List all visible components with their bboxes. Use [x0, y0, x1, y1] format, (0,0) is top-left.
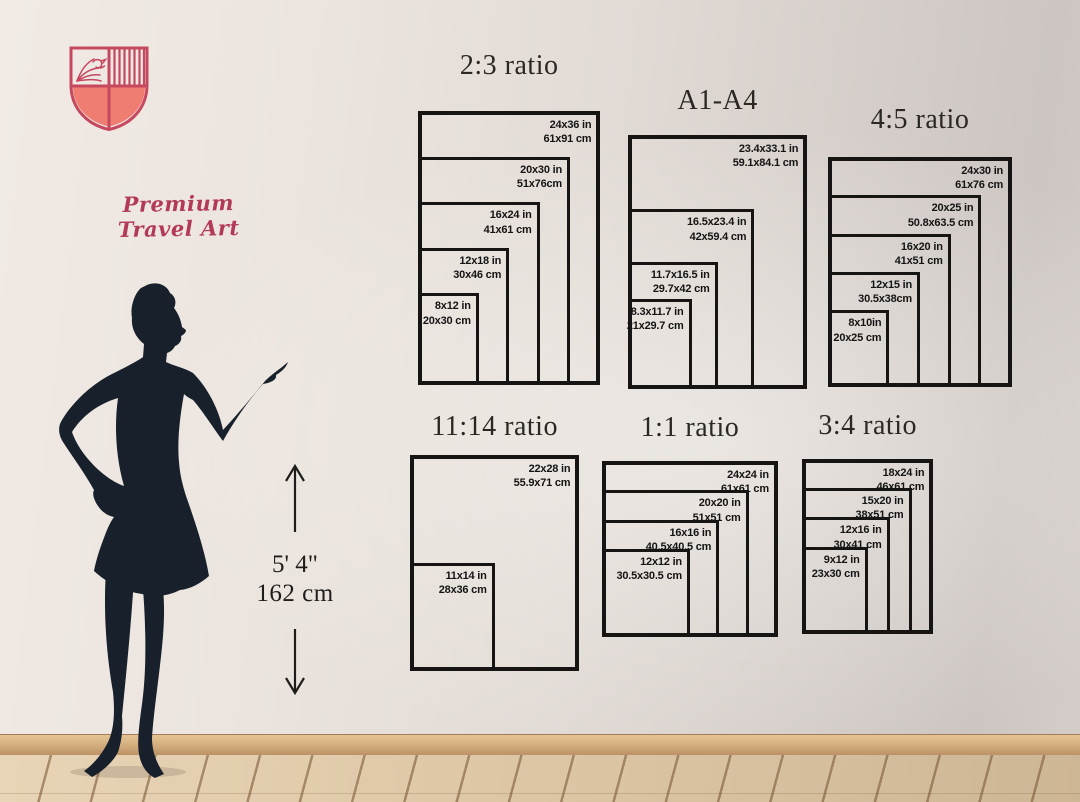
nested-frames: 22x28 in55.9x71 cm11x14 in28x36 cm [410, 455, 579, 671]
size-guide-scene: Premium Travel Art 2:3 ratio24x36 in61x9… [0, 0, 1080, 802]
size-label: 9x12 in23x30 cm [812, 553, 860, 582]
size-label-inches: 8x12 in [423, 299, 471, 313]
size-label-cm: 61x76 cm [955, 178, 1003, 192]
size-label: 20x30 in51x76cm [517, 163, 562, 192]
size-label-inches: 16.5x23.4 in [687, 215, 746, 229]
size-label-cm: 30.5x30.5 cm [616, 569, 682, 583]
size-label-inches: 23.4x33.1 in [733, 142, 799, 156]
size-chart-ratio-4-5: 4:5 ratio24x30 in61x76 cm20x25 in50.8x63… [828, 103, 1012, 387]
size-label: 16x24 in41x61 cm [484, 208, 532, 237]
chart-title: 1:1 ratio [641, 411, 740, 445]
size-label-inches: 20x30 in [517, 163, 562, 177]
size-label-inches: 8.3x11.7 in [627, 305, 684, 319]
size-label: 11.7x16.5 in29.7x42 cm [651, 268, 710, 297]
chart-title: 11:14 ratio [431, 410, 558, 444]
size-chart-ratio-1-1: 1:1 ratio24x24 in61x61 cm20x20 in51x51 c… [602, 411, 778, 637]
size-label-inches: 18x24 in [876, 466, 924, 480]
size-label-inches: 15x20 in [856, 494, 904, 508]
size-label-inches: 9x12 in [812, 553, 860, 567]
brand-name: Premium Travel Art [86, 189, 272, 243]
size-label-inches: 24x24 in [721, 468, 769, 482]
size-chart-ratio-3-4: 3:4 ratio18x24 in46x61 cm15x20 in38x51 c… [802, 409, 933, 634]
size-label-cm: 41x61 cm [484, 223, 532, 237]
size-frame: 9x12 in23x30 cm [802, 547, 868, 635]
chart-title: 3:4 ratio [818, 409, 917, 443]
size-label-inches: 16x20 in [895, 240, 943, 254]
size-label-inches: 11x14 in [439, 569, 487, 583]
size-label-cm: 51x76cm [517, 177, 562, 191]
bird-palm-quadrant [77, 59, 106, 81]
size-label-cm: 55.9x71 cm [514, 476, 571, 490]
size-label: 8x12 in20x30 cm [423, 299, 471, 328]
size-frame: 11x14 in28x36 cm [410, 563, 495, 671]
size-frame: 8x10in20x25 cm [828, 310, 889, 387]
size-label: 22x28 in55.9x71 cm [514, 462, 571, 491]
size-label-cm: 50.8x63.5 cm [908, 216, 974, 230]
size-label-inches: 12x18 in [453, 254, 501, 268]
chart-title: A1-A4 [677, 84, 757, 118]
size-label-inches: 22x28 in [514, 462, 571, 476]
size-label: 20x25 in50.8x63.5 cm [908, 201, 974, 230]
size-label: 23.4x33.1 in59.1x84.1 cm [733, 142, 799, 171]
size-label: 24x36 in61x91 cm [543, 118, 591, 147]
brand-logo: Premium Travel Art [66, 45, 152, 133]
size-label-cm: 41x51 cm [895, 254, 943, 268]
size-label-inches: 24x36 in [543, 118, 591, 132]
size-chart-ratio-11-14: 11:14 ratio22x28 in55.9x71 cm11x14 in28x… [410, 410, 579, 671]
size-label: 12x12 in30.5x30.5 cm [616, 555, 682, 584]
size-label-cm: 28x36 cm [439, 583, 487, 597]
chart-title: 4:5 ratio [871, 103, 970, 137]
size-label-cm: 21x29.7 cm [627, 319, 684, 333]
size-frame: 8.3x11.7 in21x29.7 cm [628, 299, 692, 389]
size-label-inches: 8x10in [833, 316, 881, 330]
nested-frames: 18x24 in46x61 cm15x20 in38x51 cm12x16 in… [802, 459, 933, 634]
size-label-cm: 59.1x84.1 cm [733, 156, 799, 170]
size-label-inches: 11.7x16.5 in [651, 268, 710, 282]
size-label-cm: 61x91 cm [543, 132, 591, 146]
size-label-cm: 30.5x38cm [858, 292, 912, 306]
size-label-cm: 29.7x42 cm [651, 282, 710, 296]
woman-silhouette [50, 280, 290, 780]
size-label: 8x10in20x25 cm [833, 316, 881, 345]
size-label: 12x18 in30x46 cm [453, 254, 501, 283]
size-label-inches: 12x15 in [858, 278, 912, 292]
size-label: 16.5x23.4 in42x59.4 cm [687, 215, 746, 244]
size-label-cm: 30x46 cm [453, 268, 501, 282]
nested-frames: 24x30 in61x76 cm20x25 in50.8x63.5 cm16x2… [828, 157, 1012, 387]
size-label-inches: 20x25 in [908, 201, 974, 215]
brand-shield-icon [66, 45, 152, 133]
size-chart-a-series: A1-A423.4x33.1 in59.1x84.1 cm16.5x23.4 i… [628, 84, 807, 389]
size-label-cm: 42x59.4 cm [687, 230, 746, 244]
size-label-cm: 23x30 cm [812, 567, 860, 581]
size-label-inches: 24x30 in [955, 164, 1003, 178]
size-label-cm: 20x30 cm [423, 314, 471, 328]
size-label: 24x30 in61x76 cm [955, 164, 1003, 193]
size-label-inches: 20x20 in [693, 496, 741, 510]
size-label: 12x15 in30.5x38cm [858, 278, 912, 307]
size-chart-ratio-2-3: 2:3 ratio24x36 in61x91 cm20x30 in51x76cm… [418, 49, 600, 385]
nested-frames: 24x24 in61x61 cm20x20 in51x51 cm16x16 in… [602, 461, 778, 637]
stripes-quadrant [115, 48, 145, 85]
nested-frames: 24x36 in61x91 cm20x30 in51x76cm16x24 in4… [418, 111, 600, 385]
size-label-inches: 16x16 in [646, 526, 712, 540]
size-label-inches: 12x12 in [616, 555, 682, 569]
size-label: 8.3x11.7 in21x29.7 cm [627, 305, 684, 334]
size-label: 11x14 in28x36 cm [439, 569, 487, 598]
size-frame: 8x12 in20x30 cm [418, 293, 479, 384]
size-label-cm: 20x25 cm [833, 331, 881, 345]
size-label-inches: 12x16 in [834, 523, 882, 537]
size-label-inches: 16x24 in [484, 208, 532, 222]
chart-title: 2:3 ratio [460, 49, 559, 83]
size-label: 16x20 in41x51 cm [895, 240, 943, 269]
nested-frames: 23.4x33.1 in59.1x84.1 cm16.5x23.4 in42x5… [628, 135, 807, 389]
size-frame: 12x12 in30.5x30.5 cm [602, 549, 690, 637]
